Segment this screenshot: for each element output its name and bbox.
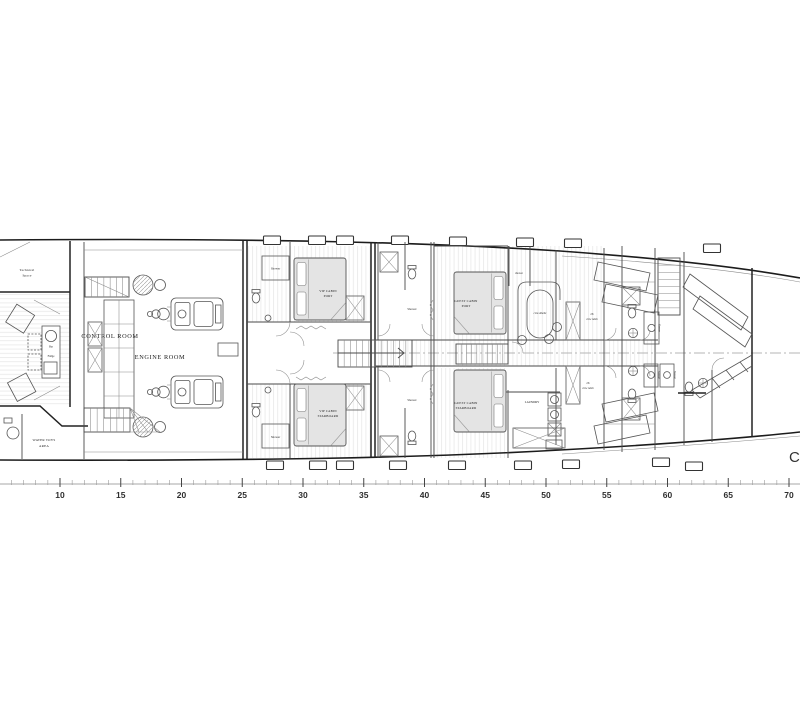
ruler-label: 65: [724, 490, 734, 500]
deck-hatch: [517, 238, 534, 247]
label-engine-room: ENGINE ROOM: [135, 354, 186, 361]
label-guest-stbd-1: GUEST CABIN: [454, 401, 478, 405]
locker-xbox: [88, 348, 102, 372]
label-shower-vip-stbd: Shower: [271, 435, 280, 439]
ruler-label: 50: [541, 490, 551, 500]
deck-hatch: [267, 461, 284, 470]
deck-hatch: [563, 460, 580, 469]
label-crew-dinette: crew dinette: [534, 312, 548, 315]
deck-hatch: [704, 244, 721, 253]
guest-port-toilet: [408, 266, 416, 280]
label-shower-guest-port: Shower: [407, 307, 416, 311]
deck-hatch: [565, 239, 582, 248]
deck-hatch: [309, 236, 326, 245]
label-bar: Bar: [49, 346, 53, 349]
deck-hatch: [337, 461, 354, 470]
label-guest-port-2: PORT: [462, 304, 471, 308]
ruler-label: 10: [55, 490, 65, 500]
crew-toilet-lower: [628, 389, 636, 403]
crew-sink-lower: [628, 366, 637, 375]
label-control-room: CONTROL ROOM: [81, 333, 138, 340]
label-fridge: Fridge: [48, 355, 56, 358]
label-water-toys-2: AREA: [39, 444, 49, 448]
locker-xbox: [380, 436, 398, 456]
locker-xbox: [380, 252, 398, 272]
label-guest-port-1: GUEST CABIN: [454, 299, 478, 303]
yacht-deck-plan-page: Technical Space Bar Fridge WATER TOYS AR…: [0, 0, 800, 720]
ruler-label: 15: [116, 490, 126, 500]
engine-room: CONTROL ROOM ENGINE ROOM: [81, 275, 238, 437]
label-vip-stbd-1: VIP CABIN: [319, 409, 337, 413]
deck-hatch: [264, 236, 281, 245]
crew-sink-upper: [628, 328, 637, 337]
label-crew-cabin-up-2: crew cabin: [586, 318, 598, 321]
crew-toilet-upper: [628, 305, 636, 319]
ruler-label: 60: [663, 490, 673, 500]
label-crew-cabin-lo-1: 2X: [586, 382, 589, 385]
deck-hatch: [392, 236, 409, 245]
label-technical-space-1: Technical: [20, 268, 35, 272]
label-shower-dinette: shower: [515, 272, 523, 275]
label-technical-space-2: Space: [22, 274, 31, 278]
vip-port-toilet: [252, 290, 260, 304]
deck-hatch: [653, 458, 670, 467]
label-vip-stbd-2: STARBOARD: [318, 414, 339, 418]
deck-hatch: [515, 461, 532, 470]
ruler-label: 70: [784, 490, 794, 500]
ruler-label: 30: [298, 490, 308, 500]
bow-sink: [698, 378, 707, 387]
scale-ruler: 10152025303540455055606570: [0, 478, 800, 500]
deck-hatch: [686, 462, 703, 471]
main-engine-port: [147, 298, 223, 330]
locker-xbox: [622, 287, 640, 305]
label-shower-guest-stbd: Shower: [407, 398, 416, 402]
deck-plan-svg: Technical Space Bar Fridge WATER TOYS AR…: [0, 0, 800, 720]
locker-xbox: [513, 428, 565, 448]
label-vip-port-1: VIP CABIN: [319, 289, 337, 293]
ruler-label: 35: [359, 490, 369, 500]
label-shower-crew-up: Shower: [658, 324, 661, 332]
deck-hatch: [450, 237, 467, 246]
ruler-label: 25: [238, 490, 248, 500]
label-shower-crew-lo1: Shower: [657, 371, 660, 379]
deck-hatch: [390, 461, 407, 470]
guest-port-bed: [454, 272, 506, 334]
forepeak: [683, 274, 752, 398]
label-water-toys-1: WATER TOYS: [33, 438, 56, 442]
water-toys-area: WATER TOYS AREA: [4, 414, 55, 459]
ruler-label: 55: [602, 490, 612, 500]
crew-staircase: [658, 258, 680, 315]
main-engine-starboard: [147, 376, 223, 408]
label-crew-cabin-up-1: 2X: [590, 313, 593, 316]
guest-stbd-toilet: [408, 431, 416, 445]
ruler-label: 20: [177, 490, 187, 500]
label-crew-cabin-lo-2: crew cabin: [582, 387, 594, 390]
label-vip-port-2: PORT: [324, 294, 333, 298]
beach-club-stairs-down: [84, 408, 130, 432]
label-shower-crew-lo2: Shower: [673, 371, 676, 379]
label-laundry: LAUNDRY: [525, 400, 540, 404]
deck-hatch: [449, 461, 466, 470]
label-shower-vip-port: Shower: [271, 267, 280, 271]
label-bow-letter: C: [789, 449, 800, 466]
ruler-label: 45: [481, 490, 491, 500]
label-guest-stbd-2: STARBOARD: [456, 406, 477, 410]
deck-hatch: [310, 461, 327, 470]
engine-room-ladder: [218, 343, 238, 356]
vip-stbd-toilet: [252, 404, 260, 418]
ruler-label: 40: [420, 490, 430, 500]
locker-xbox: [566, 366, 580, 404]
deck-hatch: [337, 236, 354, 245]
